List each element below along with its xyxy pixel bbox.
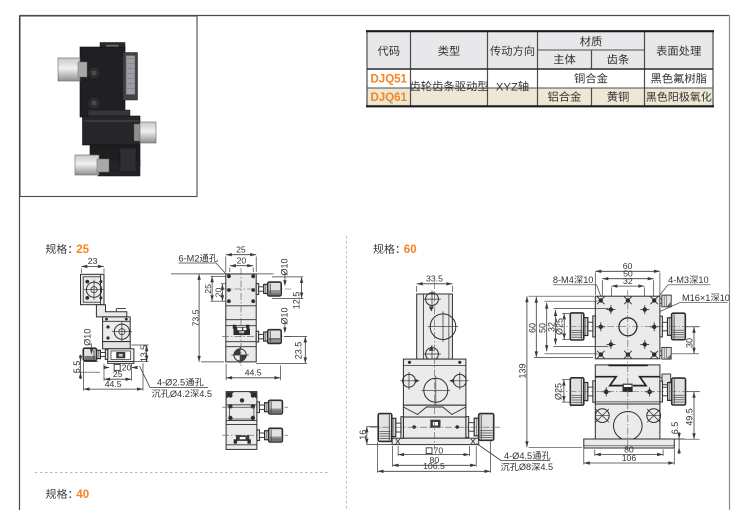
svg-text:44.5: 44.5 xyxy=(105,379,122,389)
svg-text:12.5: 12.5 xyxy=(292,292,302,310)
svg-text:Ø10: Ø10 xyxy=(83,329,93,346)
svg-text:10: 10 xyxy=(583,275,593,285)
svg-text:20: 20 xyxy=(237,255,247,265)
svg-text:25: 25 xyxy=(236,244,246,254)
svg-text:4-M3: 4-M3 xyxy=(668,275,689,285)
svg-text:8-M4: 8-M4 xyxy=(553,275,574,285)
svg-text:20: 20 xyxy=(122,363,132,373)
svg-text:13.5: 13.5 xyxy=(139,345,149,362)
svg-text:32: 32 xyxy=(623,276,633,286)
svg-text:106: 106 xyxy=(622,453,637,463)
svg-text:23: 23 xyxy=(88,256,98,266)
svg-text:23.5: 23.5 xyxy=(294,342,304,360)
svg-text:106.5: 106.5 xyxy=(423,461,445,471)
svg-text:Ø10: Ø10 xyxy=(279,258,289,275)
svg-text:60: 60 xyxy=(404,244,417,256)
svg-text:20: 20 xyxy=(214,288,224,298)
svg-text:49.5: 49.5 xyxy=(684,408,694,426)
svg-text:5.5: 5.5 xyxy=(72,361,82,374)
svg-text:Ø10: Ø10 xyxy=(279,307,289,324)
svg-text:DJQ61: DJQ61 xyxy=(371,92,408,104)
svg-text:40: 40 xyxy=(76,489,89,501)
svg-text:25: 25 xyxy=(76,244,89,256)
svg-text:6-M2: 6-M2 xyxy=(179,253,200,263)
svg-text:XYZ: XYZ xyxy=(496,81,518,93)
svg-text:4.5: 4.5 xyxy=(199,389,212,399)
svg-text:10: 10 xyxy=(698,275,708,285)
svg-text:44.5: 44.5 xyxy=(245,368,262,378)
svg-text:25: 25 xyxy=(113,369,123,379)
svg-text:M16×1: M16×1 xyxy=(682,293,710,303)
svg-text:70: 70 xyxy=(434,445,444,455)
svg-text:73.5: 73.5 xyxy=(191,309,201,326)
svg-text:Ø4.2: Ø4.2 xyxy=(170,389,190,399)
svg-text:DJQ51: DJQ51 xyxy=(371,74,408,86)
svg-text:16: 16 xyxy=(358,430,368,440)
svg-text:4-Ø4.5: 4-Ø4.5 xyxy=(504,451,532,461)
svg-text:139: 139 xyxy=(517,363,527,378)
svg-text:60: 60 xyxy=(528,323,538,333)
svg-text:6.5: 6.5 xyxy=(670,422,680,435)
svg-text:4.5: 4.5 xyxy=(540,462,553,472)
svg-text:30: 30 xyxy=(684,338,694,348)
svg-text:10: 10 xyxy=(720,293,730,303)
svg-text:4-Ø2.5: 4-Ø2.5 xyxy=(157,378,185,388)
svg-text:Ø8: Ø8 xyxy=(519,462,531,472)
svg-text:25: 25 xyxy=(203,284,213,294)
